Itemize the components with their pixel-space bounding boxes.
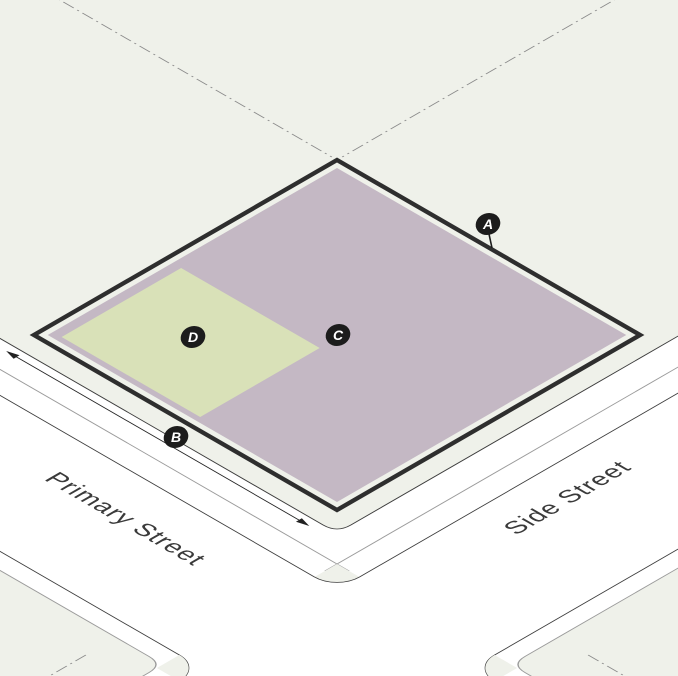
diagram-canvas: Primary Street Side Street A B C D xyxy=(0,0,678,676)
marker-c-label: C xyxy=(333,327,344,343)
marker-d-label: D xyxy=(188,329,198,345)
marker-b-label: B xyxy=(171,429,181,445)
lot-diagram: Primary Street Side Street A B C D xyxy=(0,0,678,676)
marker-a-label: A xyxy=(482,216,493,232)
